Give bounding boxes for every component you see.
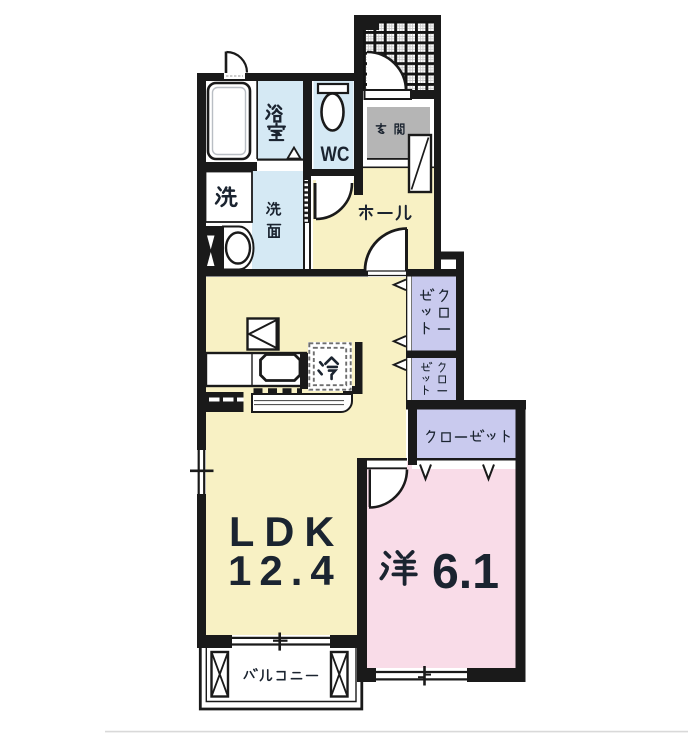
svg-text:12.4: 12.4 [228, 547, 342, 594]
svg-text:6.1: 6.1 [432, 545, 499, 599]
svg-text:WC: WC [321, 143, 350, 166]
